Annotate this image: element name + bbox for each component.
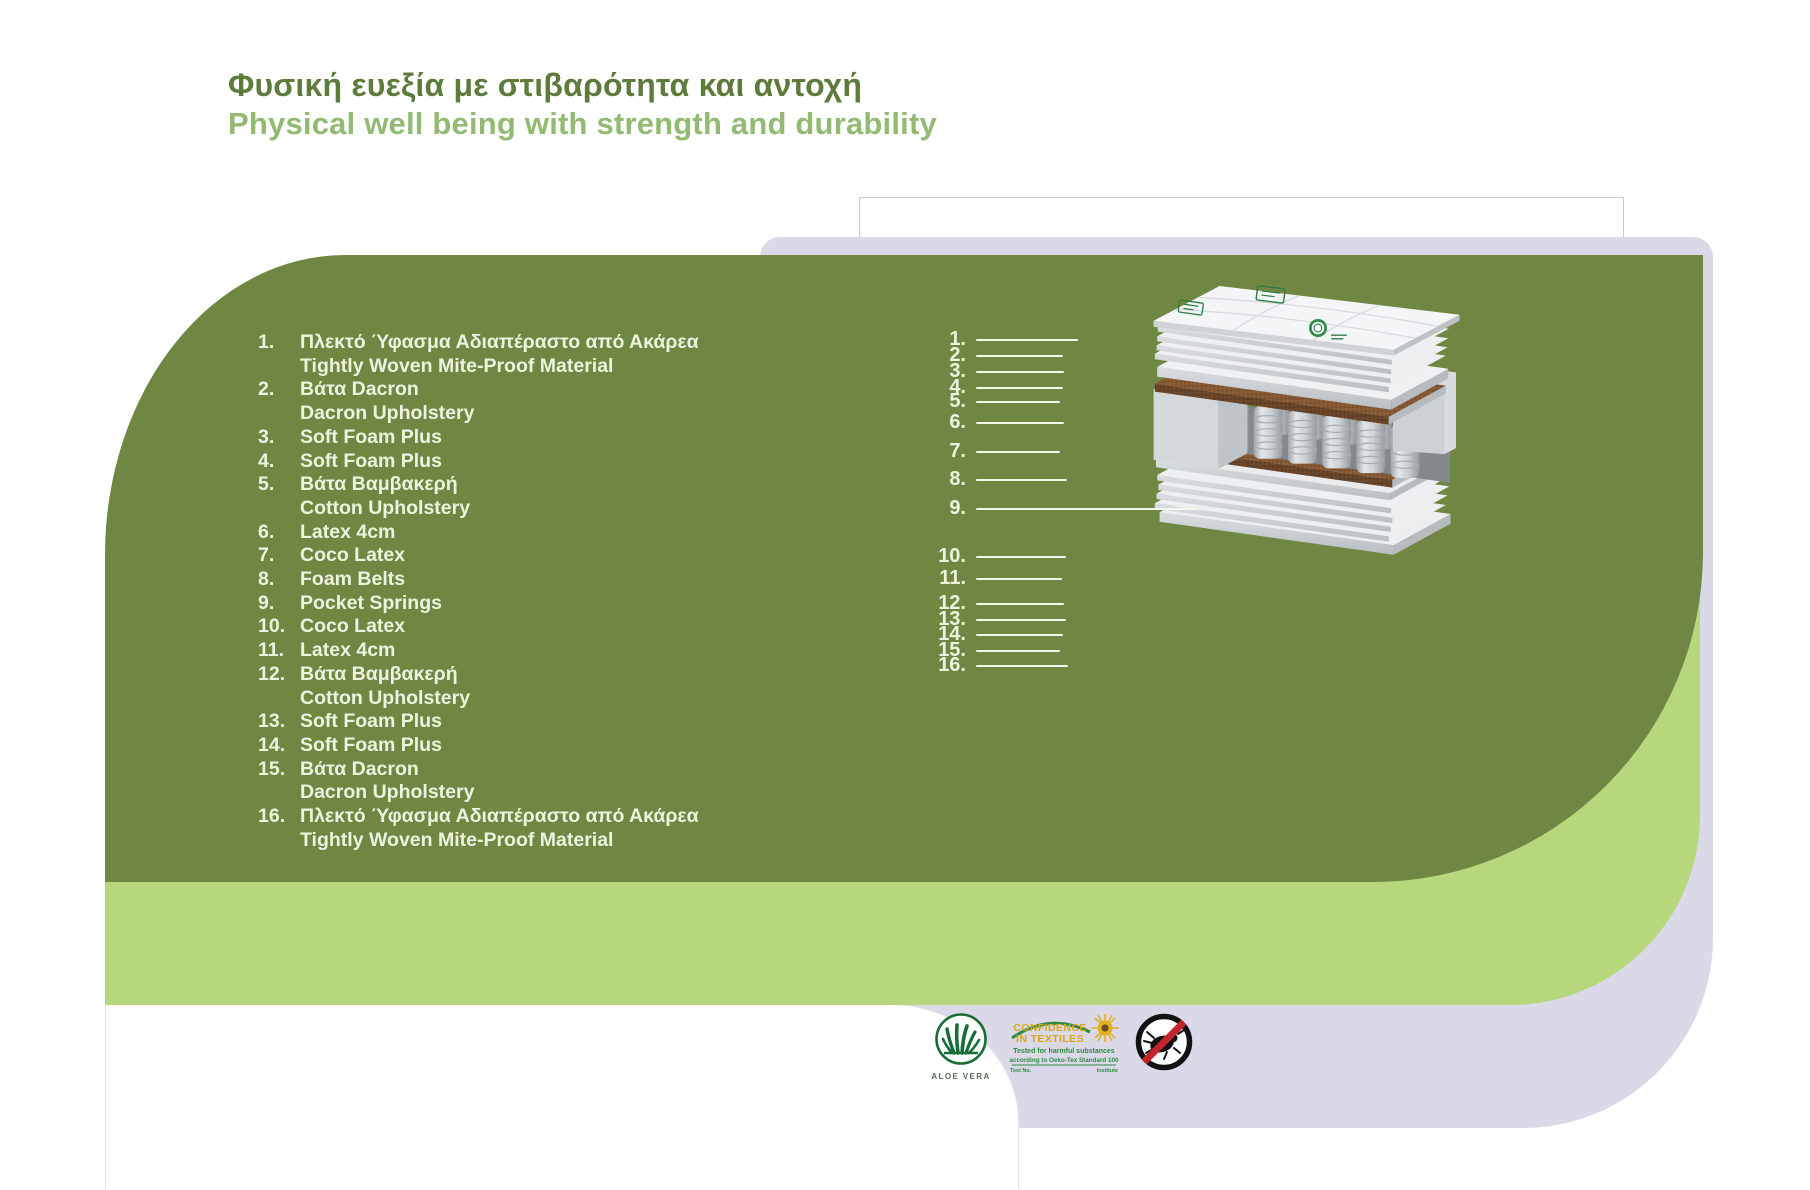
mattress-exploded-diagram (1040, 280, 1560, 700)
layer-text-main: Coco Latex (300, 544, 405, 568)
callout-number: 9. (880, 497, 966, 520)
layer-text: Πλεκτό Ύφασμα Αδιαπέραστο από ΑκάρεαTigh… (300, 805, 699, 852)
layer-number: 16. (258, 805, 300, 852)
layer-number: 12. (258, 663, 300, 710)
layer-text-main: Βάτα Dacron (300, 378, 474, 402)
layer-list-item: 3.Soft Foam Plus (258, 426, 699, 450)
layer-text-en: Cotton Upholstery (300, 497, 470, 521)
oeko-title-2: IN TEXTILES (1008, 1034, 1092, 1045)
layer-text-main: Pocket Springs (300, 592, 442, 616)
layer-list-item: 14.Soft Foam Plus (258, 734, 699, 758)
layer-text-en: Dacron Upholstery (300, 402, 474, 426)
callout-number: 7. (880, 440, 966, 463)
callout-number: 5. (880, 390, 966, 413)
callout-line (976, 387, 1063, 389)
callout-line (976, 401, 1060, 403)
brochure-page: Φυσική ευεξία με στιβαρότητα και αντοχή … (0, 0, 1810, 1190)
layer-number: 15. (258, 758, 300, 805)
title-greek: Φυσική ευεξία με στιβαρότητα και αντοχή (228, 66, 937, 105)
layer-text-main: Coco Latex (300, 615, 405, 639)
callout-line (976, 355, 1063, 357)
callout-line (976, 371, 1064, 373)
layer-text: Latex 4cm (300, 521, 395, 545)
layer-number: 1. (258, 331, 300, 378)
layer-text-main: Soft Foam Plus (300, 450, 442, 474)
layer-number: 7. (258, 544, 300, 568)
oeko-test-no: Test No. (1010, 1068, 1031, 1074)
layer-text-main: Βάτα Βαμβακερή (300, 473, 470, 497)
layer-text-main: Soft Foam Plus (300, 710, 442, 734)
layer-text-en: Cotton Upholstery (300, 687, 470, 711)
layer-text: Βάτα DacronDacron Upholstery (300, 378, 474, 425)
layer-list-item: 8.Foam Belts (258, 568, 699, 592)
callout-line (976, 578, 1062, 580)
aloe-vera-icon (934, 1012, 988, 1066)
layer-text-main: Latex 4cm (300, 639, 395, 663)
layer-number: 9. (258, 592, 300, 616)
layer-text-en: Tightly Woven Mite-Proof Material (300, 355, 699, 379)
callout-number: 6. (880, 411, 966, 434)
layer-text-main: Soft Foam Plus (300, 426, 442, 450)
layer-list-item: 13.Soft Foam Plus (258, 710, 699, 734)
layer-list-item: 5.Βάτα ΒαμβακερήCotton Upholstery (258, 473, 699, 520)
layer-number: 3. (258, 426, 300, 450)
callout-line (976, 556, 1066, 558)
layer-number: 5. (258, 473, 300, 520)
layer-list-item: 15.Βάτα DacronDacron Upholstery (258, 758, 699, 805)
layer-list-item: 1.Πλεκτό Ύφασμα Αδιαπέραστο από ΑκάρεαTi… (258, 331, 699, 378)
layer-text-en: Tightly Woven Mite-Proof Material (300, 829, 699, 853)
no-mites-icon (1134, 1012, 1194, 1072)
layer-list-item: 12.Βάτα ΒαμβακερήCotton Upholstery (258, 663, 699, 710)
layer-number: 4. (258, 450, 300, 474)
sunflower-icon (1091, 1014, 1119, 1042)
layer-list-item: 16.Πλεκτό Ύφασμα Αδιαπέραστο από ΑκάρεαT… (258, 805, 699, 852)
page-title: Φυσική ευεξία με στιβαρότητα και αντοχή … (228, 66, 937, 143)
layer-list-item: 10.Coco Latex (258, 615, 699, 639)
layer-text-en: Dacron Upholstery (300, 781, 474, 805)
oeko-footnote: Test No. Institute (1010, 1068, 1118, 1074)
layer-text-main: Πλεκτό Ύφασμα Αδιαπέραστο από Ακάρεα (300, 805, 699, 829)
callout-number: 11. (880, 567, 966, 590)
callout-line (976, 650, 1060, 652)
oeko-tested-line: Tested for harmful substances (1008, 1048, 1120, 1055)
oeko-standard-line: according to Oeko-Tex Standard 100 (1008, 1057, 1120, 1064)
layer-list-item: 11.Latex 4cm (258, 639, 699, 663)
layer-text: Soft Foam Plus (300, 710, 442, 734)
callout-line (976, 634, 1063, 636)
callout-line (976, 339, 1078, 341)
layer-text: Βάτα ΒαμβακερήCotton Upholstery (300, 473, 470, 520)
callout-number: 16. (880, 654, 966, 677)
layer-number: 2. (258, 378, 300, 425)
callout-line (976, 422, 1064, 424)
callout-line (976, 619, 1066, 621)
layer-list-item: 9.Pocket Springs (258, 592, 699, 616)
anti-mite-badge (1134, 1012, 1194, 1077)
certification-badges: ALOE VERA CONFIDENCE IN TEXTILES Teste (928, 1012, 1198, 1092)
layer-list: 1.Πλεκτό Ύφασμα Αδιαπέραστο από ΑκάρεαTi… (258, 331, 699, 852)
layer-text: Foam Belts (300, 568, 405, 592)
layer-text: Soft Foam Plus (300, 450, 442, 474)
layer-number: 10. (258, 615, 300, 639)
callout-line (976, 451, 1060, 453)
callout-line (976, 508, 1198, 510)
background-card-bottom (105, 1004, 1019, 1190)
layer-text: Βάτα DacronDacron Upholstery (300, 758, 474, 805)
layer-text: Soft Foam Plus (300, 734, 442, 758)
aloe-vera-label: ALOE VERA (928, 1072, 994, 1081)
layer-text: Pocket Springs (300, 592, 442, 616)
aloe-vera-badge: ALOE VERA (928, 1012, 994, 1081)
callout-line (976, 665, 1068, 667)
layer-text-main: Βάτα Dacron (300, 758, 474, 782)
layer-text: Βάτα ΒαμβακερήCotton Upholstery (300, 663, 470, 710)
layer-text: Coco Latex (300, 615, 405, 639)
callout-line (976, 603, 1064, 605)
layer-number: 8. (258, 568, 300, 592)
oeko-institute: Institute (1097, 1068, 1118, 1074)
layer-text-main: Latex 4cm (300, 521, 395, 545)
layer-text-main: Πλεκτό Ύφασμα Αδιαπέραστο από Ακάρεα (300, 331, 699, 355)
layer-number: 13. (258, 710, 300, 734)
layer-number: 14. (258, 734, 300, 758)
layer-text: Πλεκτό Ύφασμα Αδιαπέραστο από ΑκάρεαTigh… (300, 331, 699, 378)
layer-text-main: Soft Foam Plus (300, 734, 442, 758)
oeko-tex-badge: CONFIDENCE IN TEXTILES Tested for harmfu… (1008, 1012, 1120, 1080)
layer-text-main: Βάτα Βαμβακερή (300, 663, 470, 687)
callout-number: 10. (880, 545, 966, 568)
layer-text: Soft Foam Plus (300, 426, 442, 450)
layer-list-item: 2.Βάτα DacronDacron Upholstery (258, 378, 699, 425)
layer-number: 11. (258, 639, 300, 663)
layer-text: Coco Latex (300, 544, 405, 568)
layer-text: Latex 4cm (300, 639, 395, 663)
callout-number: 8. (880, 468, 966, 491)
layer-list-item: 4.Soft Foam Plus (258, 450, 699, 474)
layer-list-item: 6.Latex 4cm (258, 521, 699, 545)
title-english: Physical well being with strength and du… (228, 105, 937, 143)
callout-line (976, 479, 1067, 481)
layer-text-main: Foam Belts (300, 568, 405, 592)
layer-list-item: 7.Coco Latex (258, 544, 699, 568)
layer-number: 6. (258, 521, 300, 545)
